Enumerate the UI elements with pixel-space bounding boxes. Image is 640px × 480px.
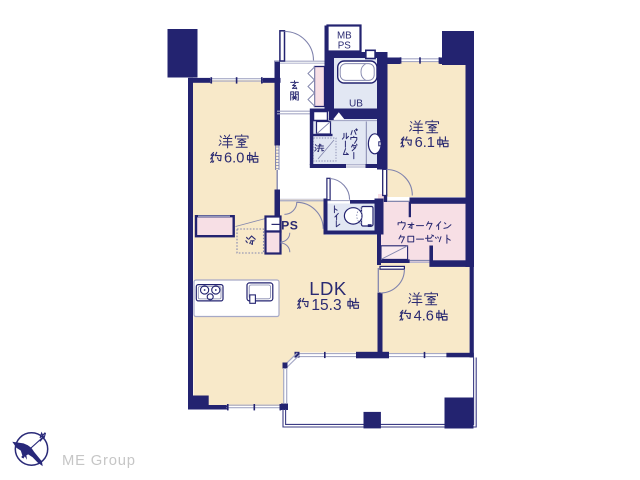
svg-text:15.3: 15.3 [311, 297, 341, 314]
svg-text:ME Group: ME Group [62, 453, 136, 469]
svg-text:6.1: 6.1 [415, 135, 435, 151]
svg-text:6.0: 6.0 [224, 151, 244, 167]
svg-text:4.6: 4.6 [414, 308, 434, 324]
svg-text:PS: PS [338, 41, 352, 52]
svg-text:PS: PS [281, 219, 298, 233]
svg-text:UB: UB [349, 99, 363, 110]
svg-text:LDK: LDK [309, 278, 347, 299]
